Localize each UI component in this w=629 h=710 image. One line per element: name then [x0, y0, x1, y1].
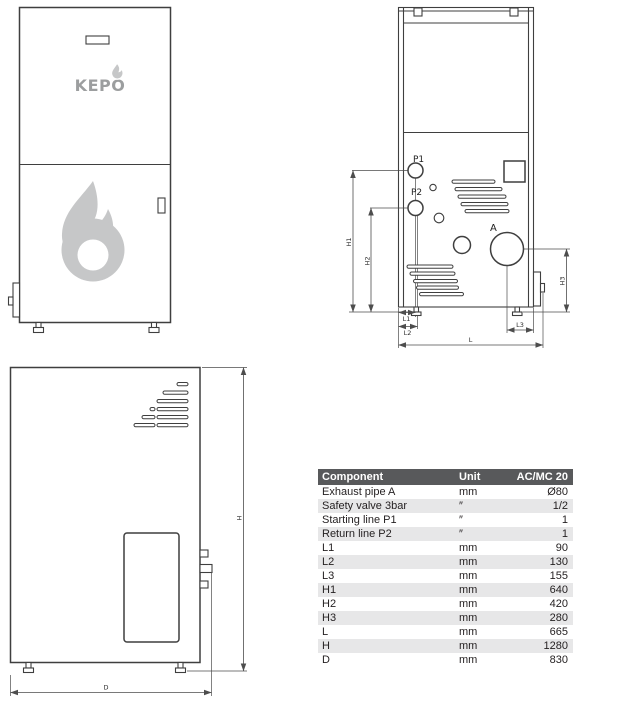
col-header-component: Component [318, 469, 455, 485]
dim-h1: H1 [345, 171, 353, 313]
exhaust-port-a [491, 233, 524, 266]
cell-component: L3 [318, 569, 455, 583]
back-feet [412, 307, 523, 316]
svg-text:L: L [469, 336, 473, 344]
cell-component: H2 [318, 597, 455, 611]
svg-text:L1: L1 [403, 315, 411, 323]
boiler-side-view: H D [11, 368, 248, 697]
electrical-box-opening [504, 161, 525, 182]
svg-text:L3: L3 [516, 321, 524, 329]
dim-l2: L2 [399, 327, 418, 338]
cell-value: 280 [510, 611, 573, 625]
cell-component: Exhaust pipe A [318, 485, 455, 499]
front-feet [34, 323, 160, 333]
medium-port [454, 237, 471, 254]
cell-value: 1 [510, 513, 573, 527]
cell-unit: mm [455, 583, 510, 597]
table-row: H3 mm 280 [318, 611, 573, 625]
col-header-model: AC/MC 20 [510, 469, 573, 485]
table-row: L mm 665 [318, 625, 573, 639]
cell-value: 155 [510, 569, 573, 583]
cell-value: 420 [510, 597, 573, 611]
svg-text:H: H [236, 515, 244, 520]
cell-value: 1 [510, 527, 573, 541]
cell-value: 830 [510, 653, 573, 667]
cell-component: H [318, 639, 455, 653]
table-row: L1 mm 90 [318, 541, 573, 555]
cell-unit: mm [455, 625, 510, 639]
cell-value: 1280 [510, 639, 573, 653]
cell-component: Starting line P1 [318, 513, 455, 527]
port-p2 [408, 201, 423, 216]
flame-ring-hole [78, 240, 109, 271]
cell-component: Return line P2 [318, 527, 455, 541]
side-access-panel [124, 533, 179, 642]
cell-value: 665 [510, 625, 573, 639]
boiler-back-view: P1 P2 A H1 [345, 8, 570, 349]
svg-text:L2: L2 [404, 329, 412, 337]
cell-component: H1 [318, 583, 455, 597]
table-row: H2 mm 420 [318, 597, 573, 611]
table-row: L2 mm 130 [318, 555, 573, 569]
dim-l: L [399, 336, 544, 345]
label-a: A [490, 223, 497, 234]
cell-unit: mm [455, 653, 510, 667]
lifting-tab-left [414, 8, 422, 16]
svg-text:H2: H2 [364, 256, 372, 265]
table-row: H1 mm 640 [318, 583, 573, 597]
cell-value: 640 [510, 583, 573, 597]
cell-value: 1/2 [510, 499, 573, 513]
cell-component: H3 [318, 611, 455, 625]
table-row: D mm 830 [318, 653, 573, 667]
dim-l3: L3 [507, 321, 534, 330]
cell-unit: ″ [455, 499, 510, 513]
table-row: Safety valve 3bar ″ 1/2 [318, 499, 573, 513]
svg-text:D: D [103, 684, 108, 692]
port-p1 [408, 163, 423, 178]
table-row: Starting line P1 ″ 1 [318, 513, 573, 527]
cell-value: 90 [510, 541, 573, 555]
cell-component: L2 [318, 555, 455, 569]
dim-h2: H2 [364, 208, 372, 312]
cell-unit: mm [455, 541, 510, 555]
table-row: Return line P2 ″ 1 [318, 527, 573, 541]
spec-table: Component Unit AC/MC 20 Exhaust pipe A m… [318, 469, 573, 667]
cell-unit: ″ [455, 513, 510, 527]
front-left-fitting [9, 283, 20, 317]
dim-h3: H3 [559, 249, 567, 312]
table-row: L3 mm 155 [318, 569, 573, 583]
cell-component: L [318, 625, 455, 639]
cell-unit: mm [455, 485, 510, 499]
display-slot [86, 36, 109, 44]
boiler-front-view: KEPO [9, 8, 171, 333]
cell-component: Safety valve 3bar [318, 499, 455, 513]
table-row: H mm 1280 [318, 639, 573, 653]
cell-unit: mm [455, 639, 510, 653]
door-handle [158, 198, 165, 213]
cell-unit: mm [455, 597, 510, 611]
spec-table-header: Component Unit AC/MC 20 [318, 469, 573, 485]
svg-text:H3: H3 [559, 276, 567, 285]
cell-unit: ″ [455, 527, 510, 541]
small-port-1 [430, 184, 436, 190]
cell-component: L1 [318, 541, 455, 555]
table-row: Exhaust pipe A mm Ø80 [318, 485, 573, 499]
svg-text:H1: H1 [345, 237, 353, 246]
label-p1: P1 [413, 155, 424, 165]
label-p2: P2 [411, 188, 422, 198]
cell-value: 130 [510, 555, 573, 569]
small-port-2 [434, 213, 444, 223]
side-pipe-fittings [200, 550, 212, 588]
cell-component: D [318, 653, 455, 667]
lifting-tab-right [510, 8, 518, 16]
cell-unit: mm [455, 555, 510, 569]
side-feet [24, 663, 186, 673]
col-header-unit: Unit [455, 469, 510, 485]
boiler-datasheet-page: KEPO [0, 0, 629, 710]
cell-value: Ø80 [510, 485, 573, 499]
cell-unit: mm [455, 611, 510, 625]
cell-unit: mm [455, 569, 510, 583]
